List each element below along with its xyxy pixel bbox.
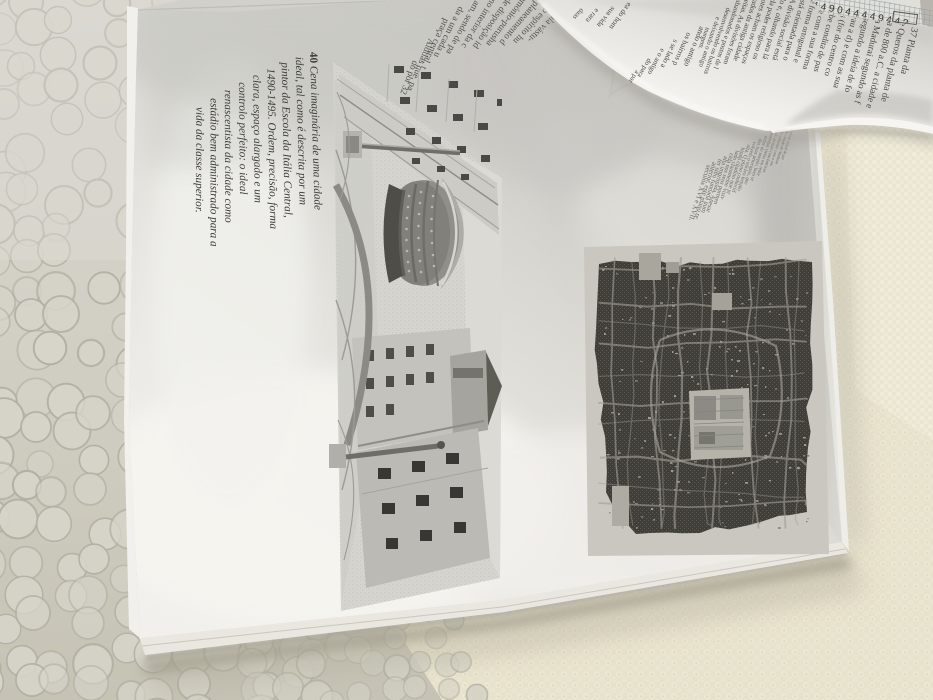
- svg-text:renascentista da cidade como: renascentista da cidade como: [222, 90, 234, 223]
- svg-text:clara, espaço alargado e um: clara, espaço alargado e um: [250, 75, 264, 203]
- svg-text:vida da classe superior.: vida da classe superior.: [193, 107, 206, 213]
- svg-text:estádio bem administrado para: estádio bem administrado para a: [208, 98, 220, 247]
- svg-text:controlo perfeito: o ideal: controlo perfeito: o ideal: [236, 82, 249, 194]
